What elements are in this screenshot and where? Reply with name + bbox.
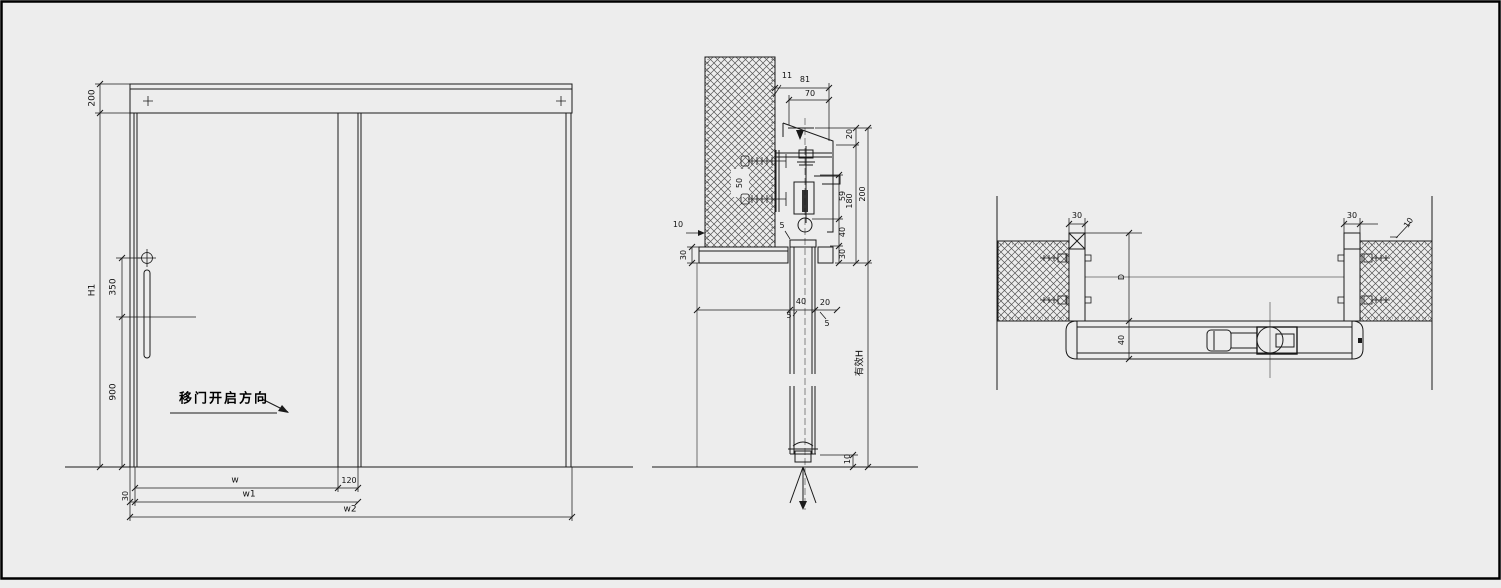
dim-clear-width: w	[231, 477, 238, 486]
dim-left-jamb-30: 30	[1072, 212, 1082, 220]
dim-gap-5b: 5	[824, 320, 829, 328]
dim-door-thickness-40-plan: 40	[1118, 335, 1126, 345]
open-direction-label: 移门开启方向	[179, 393, 269, 406]
dim-door-thickness-40: 40	[796, 298, 806, 306]
dim-handle-floor-height: 900	[110, 383, 119, 400]
dim-gap-5a: 5	[786, 312, 791, 320]
dim-wall-gap-10: 10	[673, 221, 683, 229]
dim-overall-width: w2	[343, 506, 356, 515]
dim-stile-width: 30	[122, 491, 130, 501]
dim-handle-offset: 350	[110, 278, 119, 295]
drawing-canvas: 200 H1 350 900 移门开启方向 w 120 w1 30 w2 11 …	[0, 0, 1501, 588]
dim-top-20: 20	[846, 129, 854, 139]
dim-total-200: 200	[859, 186, 867, 201]
dim-opening-D: D	[1118, 274, 1126, 280]
dim-gap-5: 5	[779, 222, 784, 230]
dim-cover-width-70: 70	[805, 90, 815, 98]
dim-cover-gap-20: 20	[820, 299, 830, 307]
dim-leaf-width: w1	[242, 491, 255, 500]
dim-wall-anchor-50: 50	[736, 178, 744, 188]
dimension-labels: 200 H1 350 900 移门开启方向 w 120 w1 30 w2 11 …	[0, 0, 1501, 588]
dim-header-height: 200	[89, 89, 98, 106]
dim-right-jamb-30: 30	[1347, 212, 1357, 220]
dim-door-height: H1	[89, 284, 98, 297]
dim-cover-total-81: 81	[800, 76, 810, 84]
dim-lintel-30: 30	[680, 250, 688, 260]
dim-offset-11: 11	[782, 72, 792, 80]
dim-inner-180: 180	[846, 193, 854, 208]
dim-clear-40: 40	[839, 227, 847, 237]
dim-floor-gap-10: 10	[844, 454, 852, 464]
dim-trim-30: 30	[839, 249, 847, 259]
dim-overlap: 120	[341, 477, 356, 485]
effective-height-label: 有效H	[855, 350, 865, 376]
dim-wall-gap-10-plan: 10	[1403, 217, 1415, 230]
